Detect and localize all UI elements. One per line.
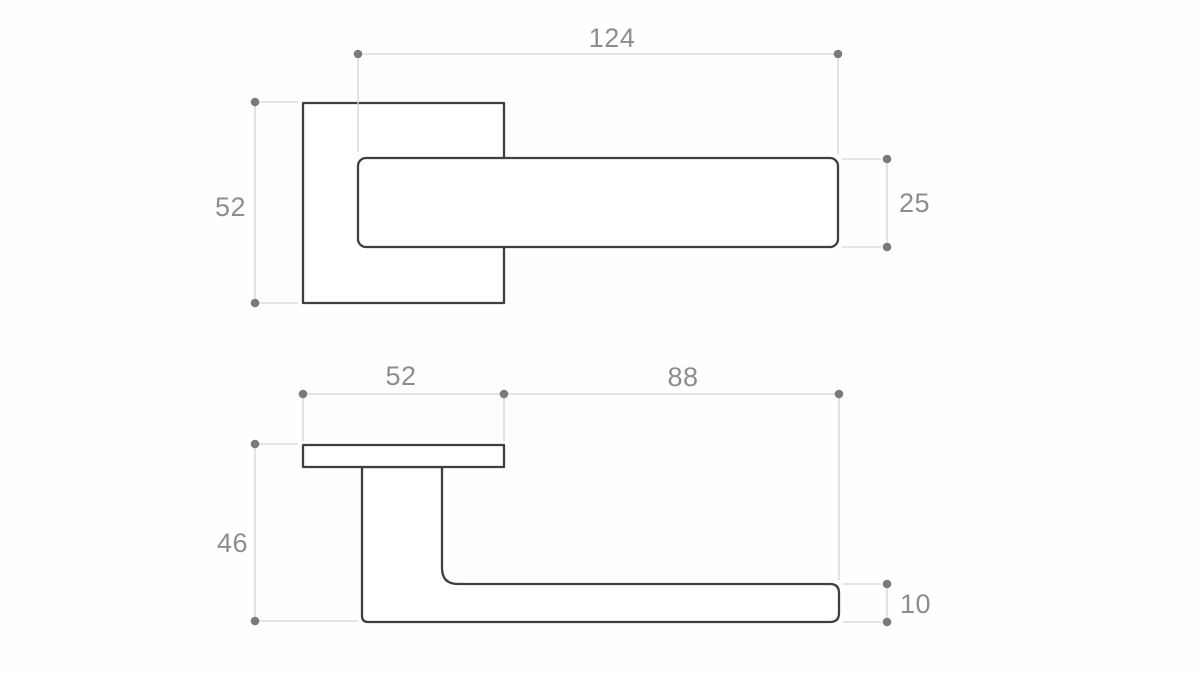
side-view: 52 88 46 10 [217, 361, 931, 626]
dim-endpoint-dot [883, 155, 892, 164]
dim-endpoint-dot [251, 299, 260, 308]
dim-label-lever-thickness: 25 [899, 188, 930, 218]
dim-endpoint-dot [354, 50, 363, 59]
dim-endpoint-dot [883, 580, 892, 589]
dim-endpoint-dot [251, 617, 260, 626]
dim-endpoint-dot [834, 50, 843, 59]
dim-label-grip-length: 88 [667, 362, 698, 392]
side-lever-outline [362, 467, 839, 622]
dim-grip-thickness: 10 [843, 580, 931, 627]
dim-endpoint-dot [883, 618, 892, 627]
dim-endpoint-dot [883, 243, 892, 252]
door-handle-dimension-drawing: 124 52 25 [0, 0, 1200, 675]
side-rosette-outline [303, 445, 504, 467]
dim-label-rosette-width: 52 [385, 361, 416, 391]
dim-endpoint-dot [500, 390, 509, 399]
dim-lever-thickness: 25 [842, 155, 930, 252]
dim-endpoint-dot [299, 390, 308, 399]
dim-endpoint-dot [835, 390, 844, 399]
dim-label-lever-length: 124 [589, 23, 636, 53]
dim-label-rosette-height: 52 [215, 192, 246, 222]
technical-drawing-canvas: 124 52 25 [0, 0, 1200, 675]
dim-label-grip-thickness: 10 [900, 589, 931, 619]
dim-rosette-height: 52 [215, 98, 298, 308]
dim-label-handle-depth: 46 [217, 528, 248, 558]
front-lever-outline [358, 158, 838, 247]
dim-endpoint-dot [251, 440, 260, 449]
dim-endpoint-dot [251, 98, 260, 107]
front-view: 124 52 25 [215, 23, 930, 307]
